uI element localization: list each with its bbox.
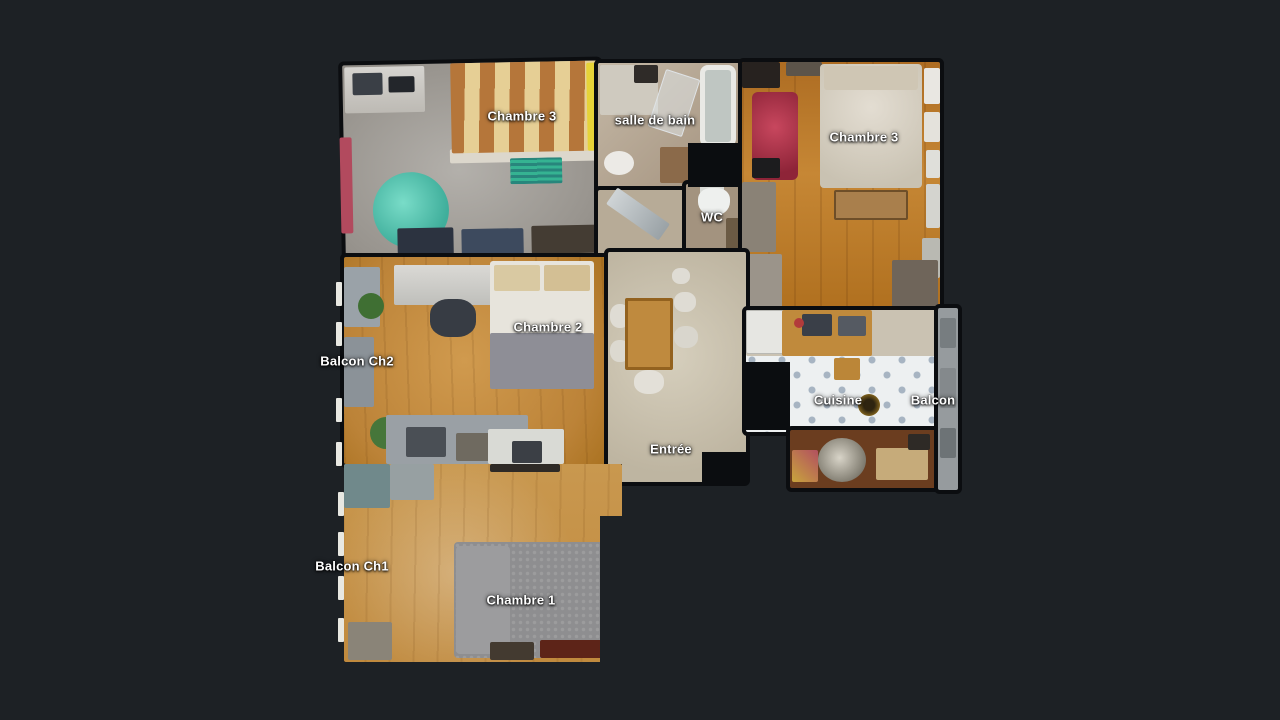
bed-base-red: [540, 640, 616, 658]
wall-shadow: [490, 464, 560, 472]
room-label-chambre2: Chambre 2: [514, 321, 583, 334]
room-label-chambre3-left: Chambre 3: [488, 110, 557, 123]
window-frame: [924, 112, 940, 142]
side-clutter: [742, 254, 782, 308]
balcony-clutter: [340, 137, 354, 233]
railing-segment: [336, 398, 342, 422]
bed-striped: [450, 61, 602, 154]
pillow: [494, 265, 540, 291]
window-frame: [926, 150, 940, 178]
desk-clutter: [352, 73, 382, 96]
desk-chair: [430, 299, 476, 337]
wall-chunk: [702, 452, 748, 482]
bed-blanket-grey: [490, 333, 594, 389]
bath-clutter: [634, 65, 658, 83]
bathtub: [700, 65, 736, 147]
room-label-salle-de-bain: salle de bain: [615, 114, 696, 127]
railing-segment: [338, 532, 344, 556]
railing-segment: [338, 618, 344, 642]
dining-table: [625, 298, 673, 370]
room-label-balcon-ch1: Balcon Ch1: [315, 560, 389, 573]
counter-item: [908, 434, 930, 450]
railing-segment: [338, 492, 344, 516]
floor-clutter: [461, 228, 523, 255]
room-label-balcon-ch2: Balcon Ch2: [320, 355, 394, 368]
floor-clutter: [348, 622, 392, 660]
railing-segment: [336, 322, 342, 346]
sink-bowl: [818, 438, 866, 482]
floorplan-viewport[interactable]: Chambre 3 salle de bain Chambre 3 WC Cha…: [0, 0, 1280, 720]
railing-segment: [338, 576, 344, 600]
counter-box: [876, 448, 928, 480]
room-label-entree: Entrée: [650, 443, 692, 456]
pillows: [824, 66, 918, 90]
balcony-clutter: [390, 464, 434, 500]
chair: [674, 292, 696, 312]
room-label-chambre1: Chambre 1: [487, 594, 556, 607]
chair: [674, 326, 698, 348]
room-chambre3-left[interactable]: [342, 61, 602, 260]
chair: [672, 268, 690, 284]
room-chambre3-right[interactable]: [742, 62, 940, 310]
room-label-balcon: Balcon: [911, 394, 956, 407]
tv-screen: [752, 158, 780, 178]
wall-chunk: [688, 143, 740, 187]
balcony-clutter: [344, 337, 374, 407]
window-frame: [926, 184, 940, 228]
floor-clutter: [490, 642, 534, 660]
chair: [634, 370, 664, 394]
stool: [834, 358, 860, 380]
kitchen-counter[interactable]: [790, 430, 936, 488]
desk-dark: [742, 62, 780, 88]
shelf-clutter: [786, 62, 822, 76]
table-item-red: [794, 318, 804, 328]
wardrobe-clutter: [406, 427, 446, 457]
counter-clutter: [792, 450, 818, 482]
window-frame: [924, 68, 940, 104]
floor-clutter: [397, 227, 454, 256]
room-label-chambre3-right: Chambre 3: [830, 131, 899, 144]
leaning-mirror: [606, 187, 670, 240]
corner-clutter: [892, 260, 938, 308]
wall-chunk: [746, 362, 790, 430]
desk-item: [512, 441, 542, 463]
room-label-cuisine: Cuisine: [814, 394, 862, 407]
balcony-item: [940, 318, 956, 348]
room-label-wc: WC: [701, 211, 723, 224]
side-clutter: [742, 182, 776, 252]
pillow: [544, 265, 590, 291]
balcony-item: [940, 428, 956, 458]
table-clutter: [802, 314, 832, 336]
sink: [604, 151, 634, 175]
balcony-clutter: [344, 464, 390, 508]
railing-segment: [336, 282, 342, 306]
table-clutter: [838, 316, 866, 336]
plant: [358, 293, 384, 319]
bed-bench: [834, 190, 908, 220]
teal-mat: [510, 157, 562, 184]
railing-segment: [336, 442, 342, 466]
corridor[interactable]: [598, 190, 688, 258]
shelf: [726, 218, 740, 250]
desk-clutter: [388, 76, 414, 92]
